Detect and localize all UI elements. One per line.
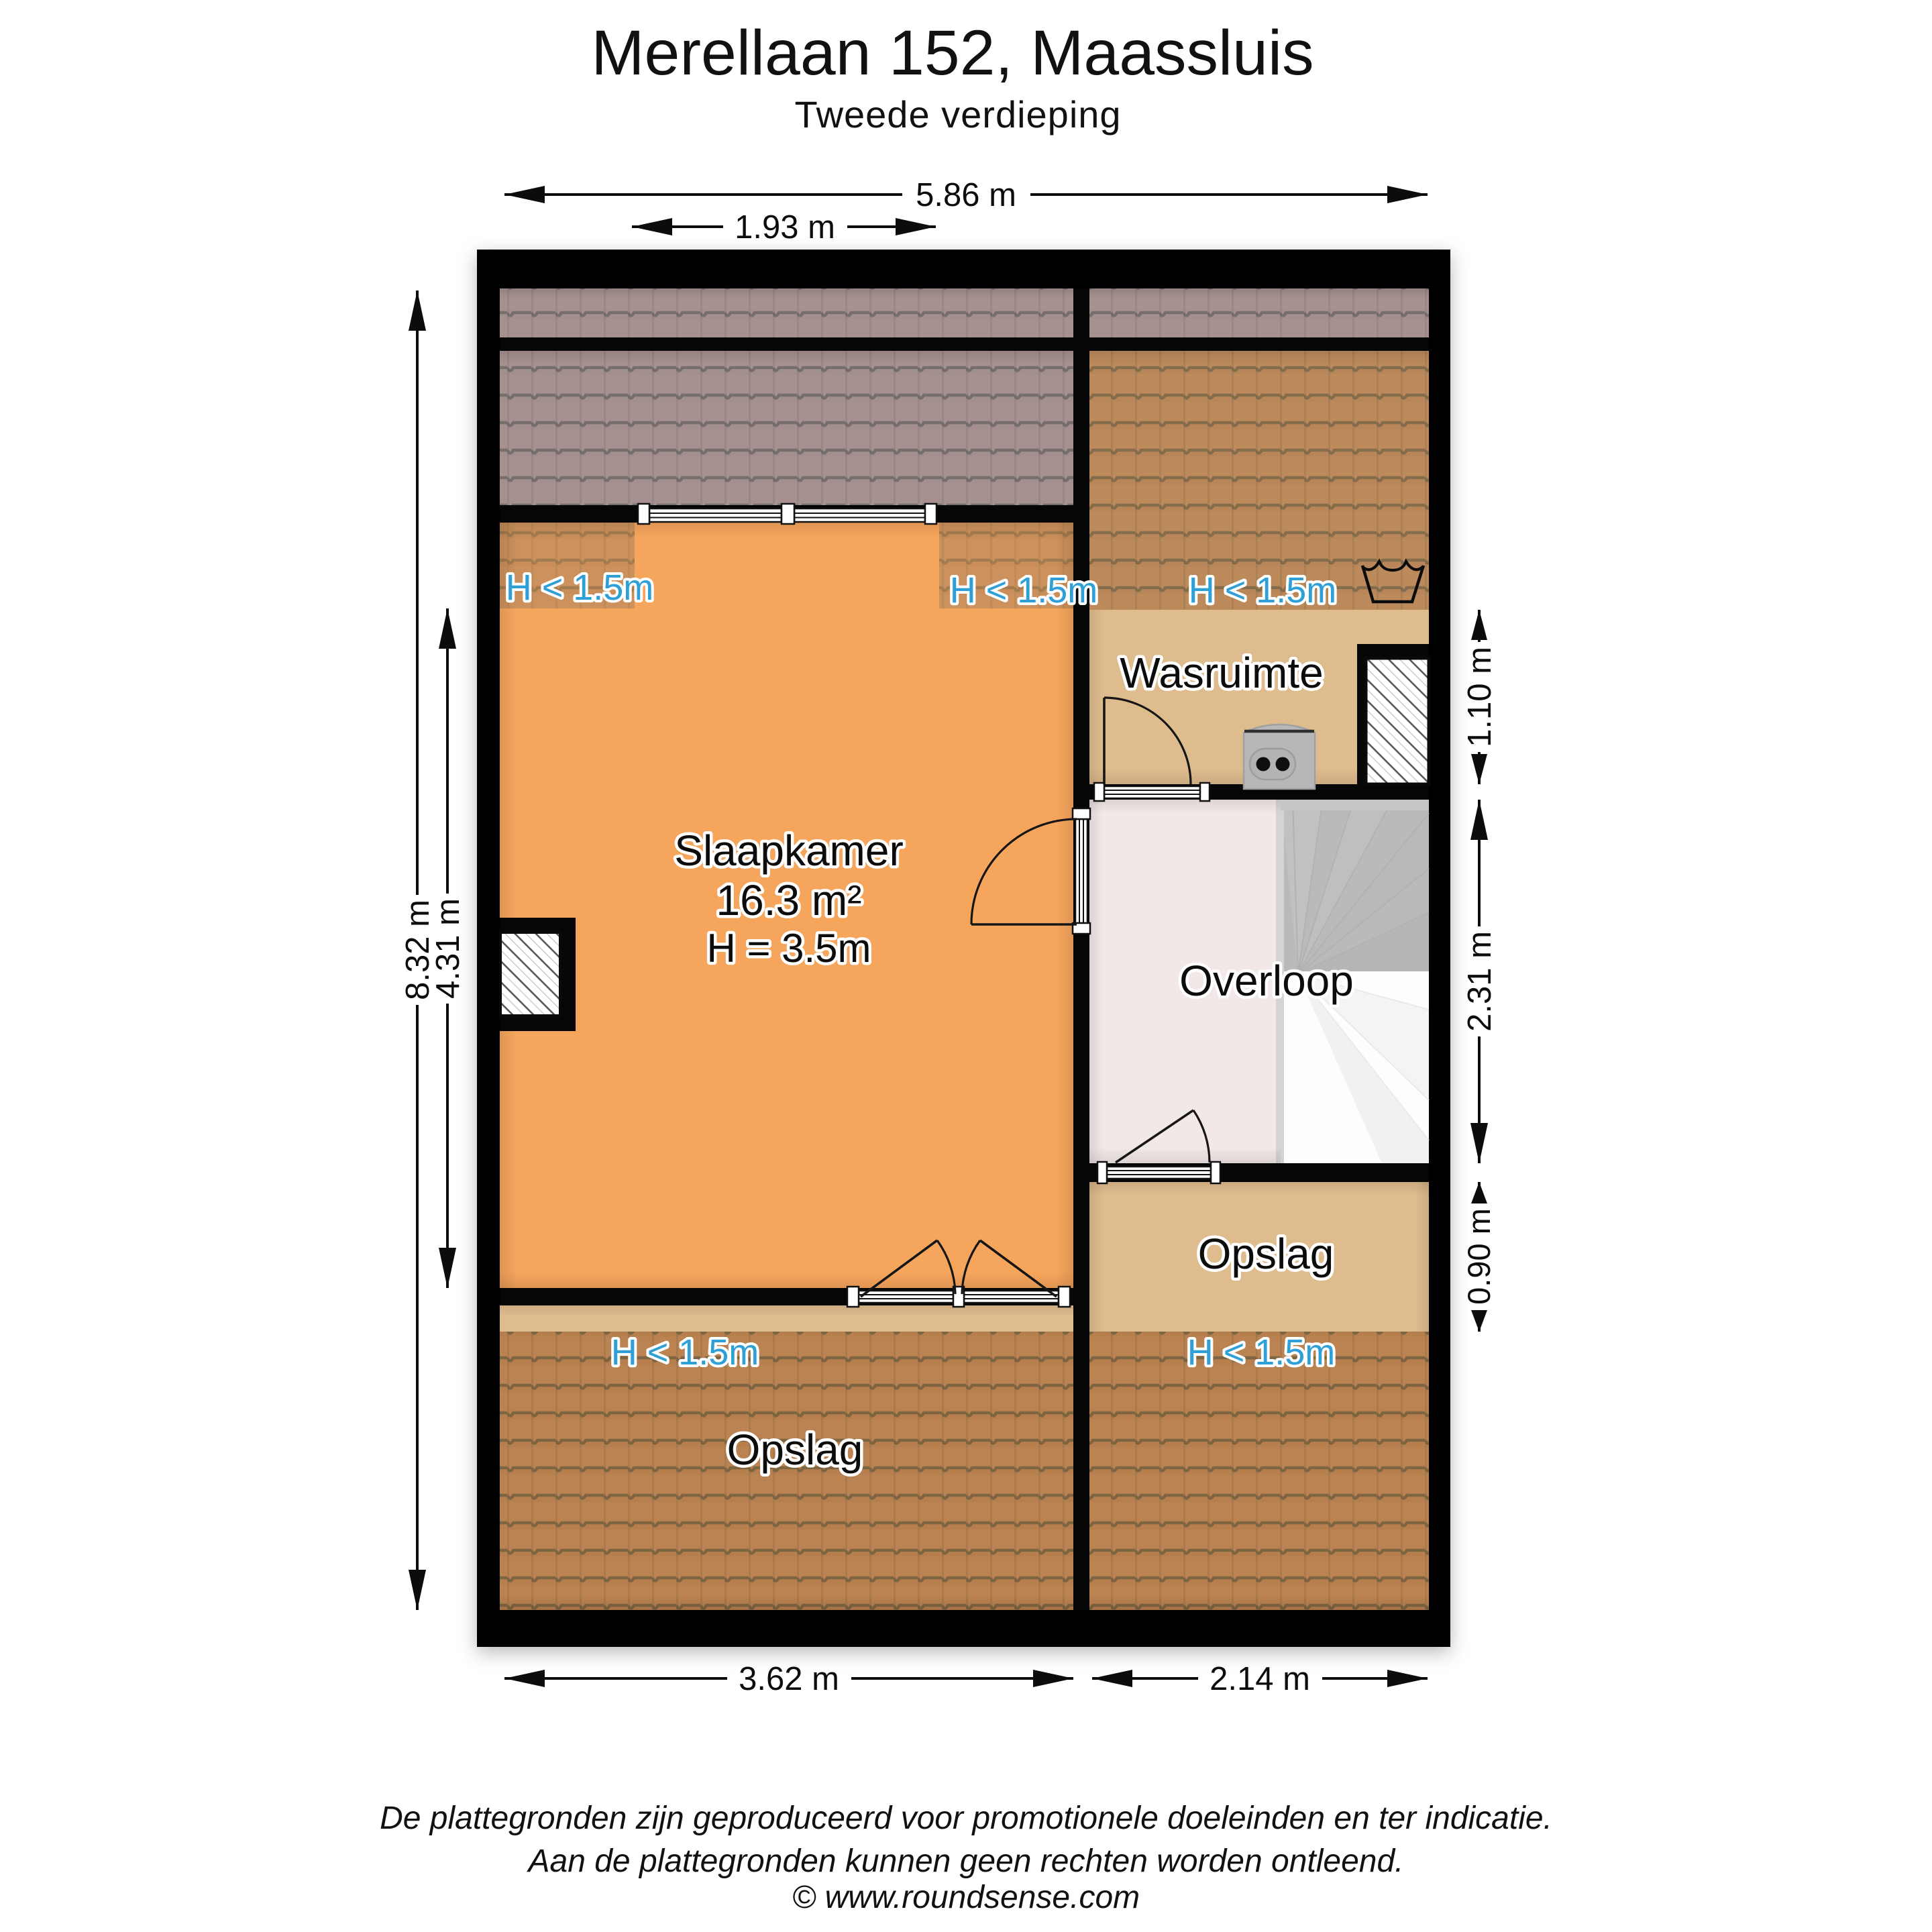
svg-text:Tweede verdieping: Tweede verdieping bbox=[794, 93, 1121, 136]
svg-text:De plattegronden zijn geproduc: De plattegronden zijn geproduceerd voor … bbox=[380, 1801, 1552, 1836]
svg-text:Opslag: Opslag bbox=[727, 1426, 863, 1474]
svg-text:Merellaan 152, Maassluis: Merellaan 152, Maassluis bbox=[591, 17, 1313, 89]
svg-text:Wasruimte: Wasruimte bbox=[1120, 649, 1323, 697]
svg-text:4.31 m: 4.31 m bbox=[430, 898, 466, 999]
svg-text:Aan de plattegronden kunnen ge: Aan de plattegronden kunnen geen rechten… bbox=[526, 1843, 1403, 1879]
svg-text:2.31 m: 2.31 m bbox=[1462, 931, 1498, 1032]
svg-text:© www.roundsense.com: © www.roundsense.com bbox=[792, 1880, 1140, 1915]
svg-text:H < 1.5m: H < 1.5m bbox=[1189, 570, 1337, 610]
svg-text:H < 1.5m: H < 1.5m bbox=[950, 570, 1098, 610]
svg-text:0.90 m: 0.90 m bbox=[1461, 1208, 1497, 1305]
svg-text:Slaapkamer: Slaapkamer bbox=[674, 826, 904, 875]
svg-text:1.10 m: 1.10 m bbox=[1462, 647, 1498, 747]
svg-text:2.14 m: 2.14 m bbox=[1210, 1661, 1310, 1697]
svg-text:H < 1.5m: H < 1.5m bbox=[611, 1332, 759, 1373]
svg-text:5.86 m: 5.86 m bbox=[916, 177, 1016, 213]
svg-text:Opslag: Opslag bbox=[1198, 1230, 1334, 1278]
svg-text:H = 3.5m: H = 3.5m bbox=[706, 926, 871, 971]
svg-text:H < 1.5m: H < 1.5m bbox=[1187, 1332, 1336, 1373]
svg-text:1.93 m: 1.93 m bbox=[735, 209, 835, 246]
svg-text:3.62 m: 3.62 m bbox=[739, 1661, 839, 1697]
svg-text:16.3 m²: 16.3 m² bbox=[716, 876, 862, 924]
svg-text:H < 1.5m: H < 1.5m bbox=[506, 568, 654, 608]
svg-text:Overloop: Overloop bbox=[1179, 957, 1354, 1005]
